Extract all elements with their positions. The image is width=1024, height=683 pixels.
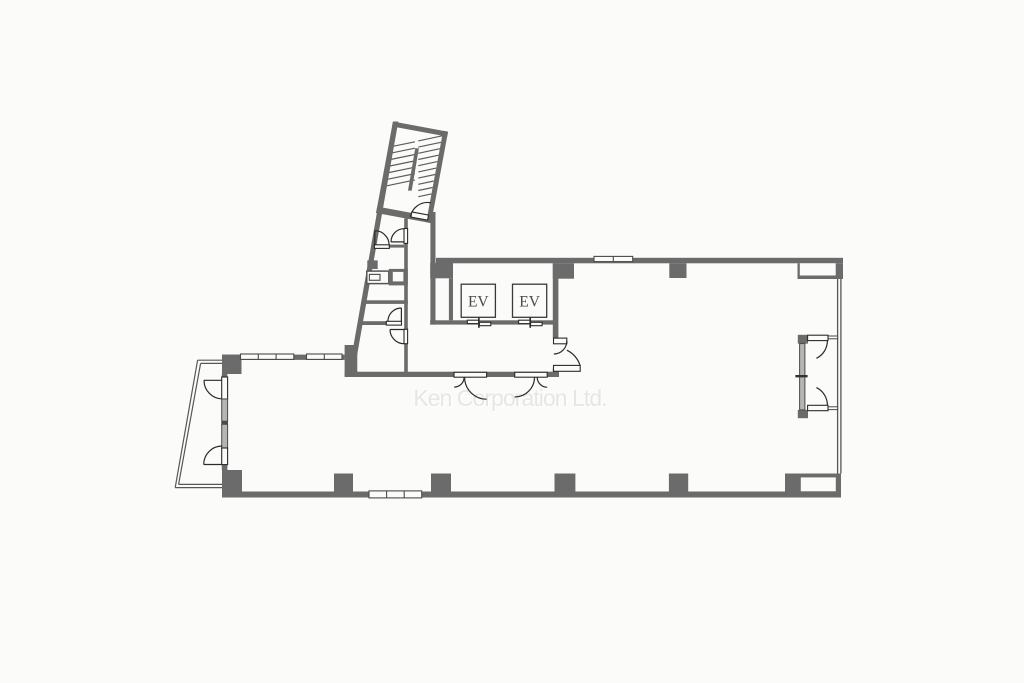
svg-text:EV: EV (519, 293, 540, 310)
svg-text:EV: EV (468, 293, 489, 310)
svg-text:Ken Corporation Ltd.: Ken Corporation Ltd. (413, 385, 606, 411)
